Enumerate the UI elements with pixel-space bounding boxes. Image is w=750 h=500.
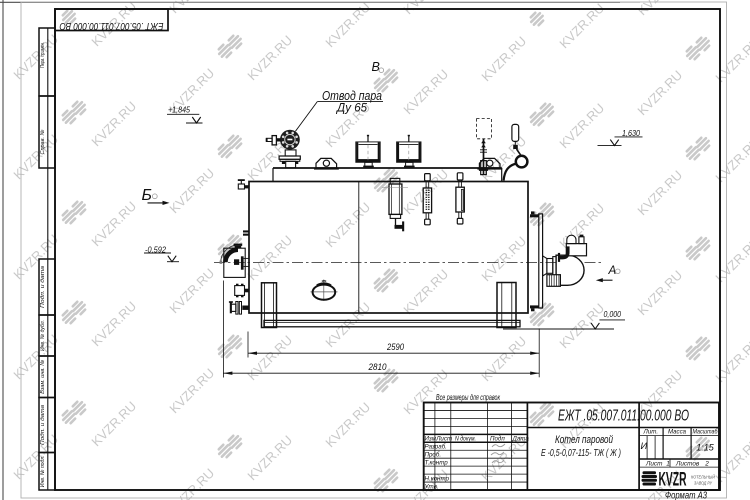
svg-text:Инв. № подл.: Инв. № подл. [40, 455, 46, 487]
svg-text:Формат А3: Формат А3 [665, 491, 707, 500]
svg-text:Масса: Масса [668, 429, 687, 436]
svg-text:Листов: Листов [675, 460, 700, 467]
svg-text:N докум.: N докум. [455, 436, 476, 443]
svg-text:Разраб.: Разраб. [425, 444, 447, 451]
svg-text:1,630: 1,630 [622, 128, 640, 138]
svg-text:2810: 2810 [368, 362, 387, 372]
svg-text:Подп. и дата: Подп. и дата [40, 404, 46, 445]
svg-text:Е -0,5-0,07-115- ТЖ ( Ж ): Е -0,5-0,07-115- ТЖ ( Ж ) [541, 447, 621, 459]
svg-text:Ду 65: Ду 65 [335, 101, 367, 115]
svg-text:1:15: 1:15 [696, 443, 715, 453]
svg-text:2590: 2590 [386, 342, 404, 352]
svg-text:Лист: Лист [435, 436, 452, 443]
svg-text:Т.контр: Т.контр [425, 460, 449, 467]
svg-text:Лит.: Лит. [643, 429, 659, 436]
svg-text:И: И [641, 441, 648, 452]
svg-text:Дата: Дата [512, 436, 530, 443]
svg-text:Подп: Подп [490, 436, 505, 443]
svg-text:Масштаб: Масштаб [693, 429, 718, 436]
svg-text:Б: Б [142, 187, 152, 204]
svg-text:Проб.: Проб. [425, 452, 442, 459]
svg-text:Подп. и дата: Подп. и дата [40, 265, 46, 308]
svg-text:ЕЖТ .05.007.011.00.000 ВО: ЕЖТ .05.007.011.00.000 ВО [60, 20, 164, 31]
svg-text:0,000: 0,000 [604, 309, 622, 319]
svg-text:Инв. № дубл.: Инв. № дубл. [40, 320, 46, 351]
svg-text:Н.контр: Н.контр [425, 475, 450, 482]
svg-text:Все размеры для справок: Все размеры для справок [436, 392, 501, 402]
svg-text:Взам. инв. №: Взам. инв. № [40, 360, 46, 394]
svg-text:Котел паровой: Котел паровой [555, 434, 613, 446]
svg-text:Изм: Изм [425, 436, 437, 443]
svg-text:2: 2 [704, 460, 709, 467]
svg-text:Справ. №: Справ. № [40, 130, 46, 155]
svg-text:1: 1 [666, 460, 670, 467]
svg-text:В: В [372, 60, 380, 74]
svg-text:+1,845: +1,845 [168, 104, 190, 114]
svg-text:Утв.: Утв. [424, 483, 439, 490]
svg-text:ЕЖТ .05.007.011.00.000 ВО: ЕЖТ .05.007.011.00.000 ВО [558, 408, 689, 425]
svg-text:ЗАВОД РУ: ЗАВОД РУ [694, 481, 713, 487]
svg-text:Лист: Лист [645, 460, 663, 467]
svg-text:KVZR: KVZR [659, 469, 687, 491]
svg-text:Перв. примен.: Перв. примен. [40, 42, 46, 68]
